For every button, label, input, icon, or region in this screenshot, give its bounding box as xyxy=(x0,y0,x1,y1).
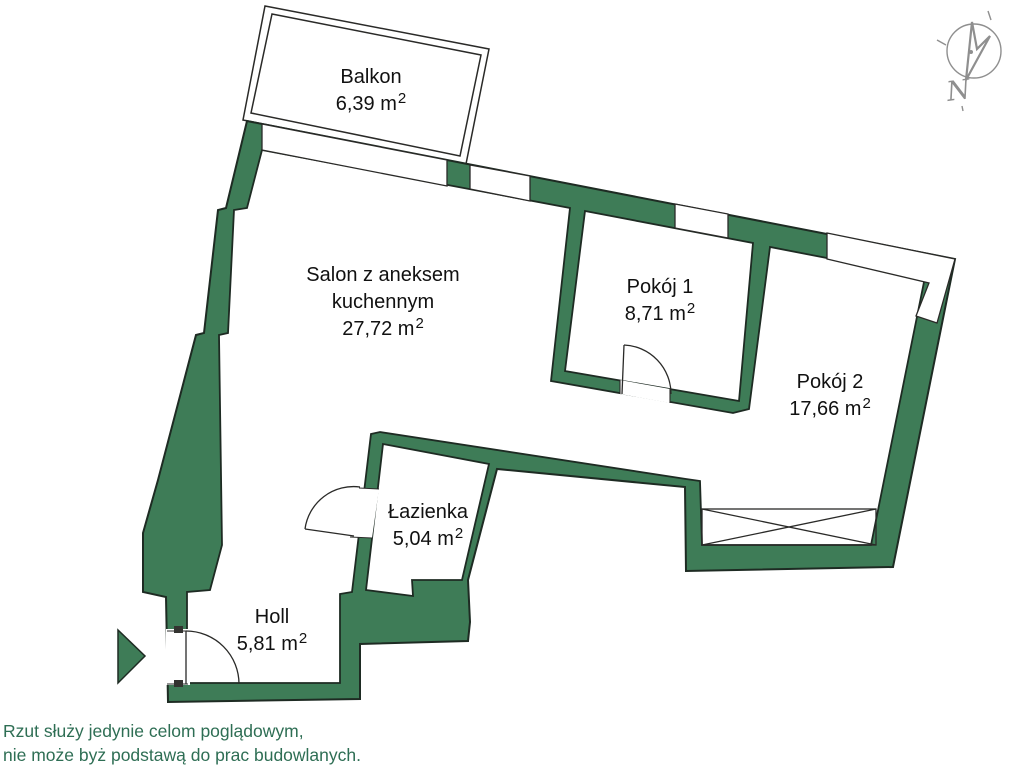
entrance-jamb-nub-top xyxy=(174,626,183,633)
label-balkon: Balkon 6,39 m2 xyxy=(336,64,407,119)
room-area: 27,72 m2 xyxy=(306,316,459,344)
compass-north-label: N xyxy=(944,74,974,108)
label-pokoj1: Pokój 1 8,71 m2 xyxy=(625,274,696,329)
room-name-line2: kuchennym xyxy=(306,289,459,316)
room-name: Pokój 1 xyxy=(625,274,696,301)
room-area: 5,81 m2 xyxy=(237,631,308,659)
room-name: Salon z aneksem xyxy=(306,262,459,289)
label-holl: Holl 5,81 m2 xyxy=(237,604,308,659)
label-salon: Salon z aneksem kuchennym 27,72 m2 xyxy=(306,262,459,344)
room-area: 17,66 m2 xyxy=(789,396,871,424)
room-area: 8,71 m2 xyxy=(625,301,696,329)
entrance-jamb-nub-bottom xyxy=(174,680,183,687)
room-name: Łazienka xyxy=(388,499,468,526)
room-name: Pokój 2 xyxy=(789,369,871,396)
floorplan-page: N Balkon 6,39 m2 Salon z aneksem kuchenn… xyxy=(0,0,1024,768)
disclaimer-line1: Rzut służy jedynie celom poglądowym, xyxy=(3,719,361,743)
disclaimer-text: Rzut służy jedynie celom poglądowym, nie… xyxy=(3,719,361,767)
room-area: 6,39 m2 xyxy=(336,91,407,119)
disclaimer-line2: nie może byż podstawą do prac budowlanyc… xyxy=(3,743,361,767)
label-lazienka: Łazienka 5,04 m2 xyxy=(388,499,468,554)
room-name: Balkon xyxy=(336,64,407,91)
label-pokoj2: Pokój 2 17,66 m2 xyxy=(789,369,871,424)
entrance-arrow-icon xyxy=(118,630,145,683)
room-name: Holl xyxy=(237,604,308,631)
compass-icon: N xyxy=(937,11,1001,111)
room-area: 5,04 m2 xyxy=(388,526,468,554)
